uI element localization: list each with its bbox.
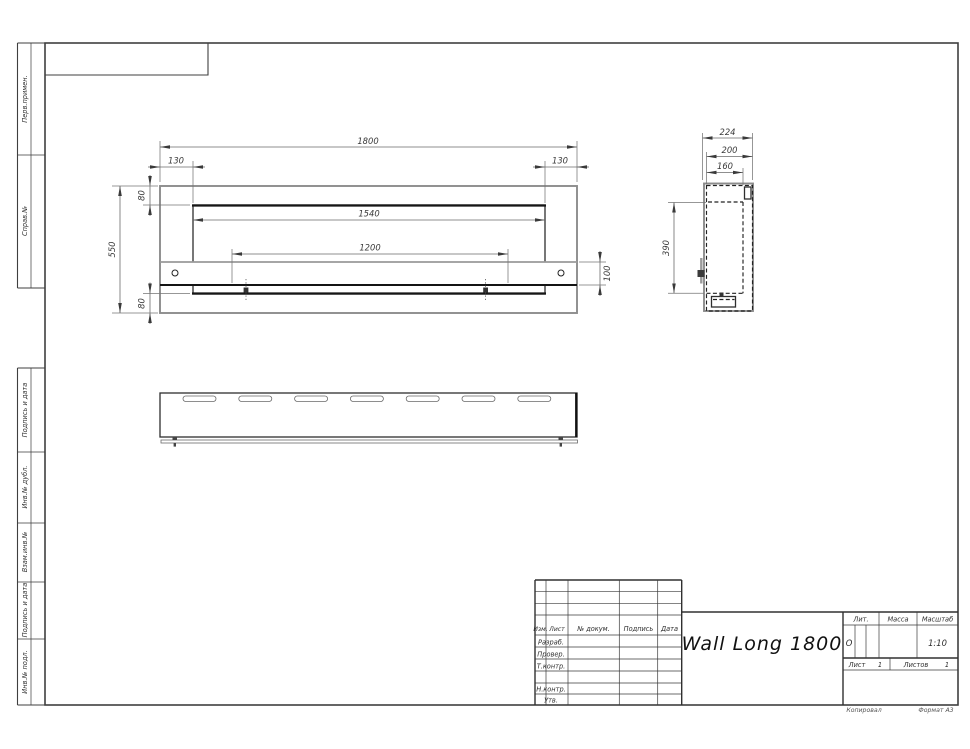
tb-sheet-label: Лист: [848, 661, 866, 669]
left-foot: [173, 437, 178, 447]
svg-text:80: 80: [137, 190, 147, 201]
tb-col-doc: № докум.: [576, 625, 610, 633]
margin-label-vzam-inv: Взам.инв.№: [21, 532, 29, 573]
dim-shelf-height: 100: [579, 251, 612, 296]
title-block: Изм. Лист № докум. Подпись Дата Разраб. …: [533, 580, 958, 705]
drawing-canvas: Перв.примен. Справ.№ Подпись и дата Инв.…: [0, 0, 970, 749]
tb-scale-value: 1:10: [928, 638, 947, 648]
bottom-view: [160, 393, 578, 447]
front-view-dimensions: 1800 130 130 80 80: [107, 136, 612, 324]
top-designation-box: [45, 43, 208, 75]
svg-text:1200: 1200: [359, 243, 380, 253]
tb-sheets-total: 1: [945, 661, 949, 669]
tb-lit-value: О: [846, 638, 853, 648]
svg-text:1800: 1800: [357, 136, 378, 146]
side-outer-contour: [704, 184, 753, 312]
tb-row-tcontrol: Т.контр.: [537, 663, 566, 671]
svg-text:224: 224: [720, 127, 736, 137]
dim-side-height: 390: [661, 203, 706, 294]
bottom-outer-contour: [160, 393, 577, 437]
margin-label-podpis-data-2: Подпись и дата: [21, 583, 29, 638]
tb-lit-label: Лит.: [852, 616, 868, 624]
copied-label: Копировал: [846, 707, 881, 714]
svg-text:1540: 1540: [358, 209, 379, 219]
margin-column-blocks: Перв.примен. Справ.№ Подпись и дата Инв.…: [18, 43, 46, 705]
svg-text:130: 130: [168, 156, 184, 166]
product-name: Wall Long 1800: [682, 633, 843, 655]
svg-text:160: 160: [717, 161, 733, 171]
tb-col-list: Лист: [548, 626, 565, 633]
tb-row-checked: Провер.: [537, 651, 564, 659]
side-top-bracket: [745, 187, 752, 199]
drawing-sheet: Перв.примен. Справ.№ Подпись и дата Инв.…: [0, 0, 970, 749]
tb-col-sign: Подпись: [624, 625, 654, 633]
left-mount-hole: [172, 270, 178, 276]
svg-text:550: 550: [107, 242, 117, 258]
tb-mass-label: Масса: [887, 616, 908, 624]
footer-notes: Копировал Формат А3: [846, 707, 953, 714]
svg-text:100: 100: [602, 266, 612, 282]
tb-scale-label: Масштаб: [922, 616, 953, 624]
dim-top-flange: 80: [137, 175, 191, 216]
svg-text:200: 200: [722, 145, 738, 155]
margin-label-podpis-data-1: Подпись и дата: [21, 383, 29, 438]
margin-label-inv-podl: Инв.№ подл.: [21, 650, 29, 693]
side-bottom-box: [712, 293, 736, 308]
dim-bottom-flange: 80: [137, 283, 191, 325]
format-label: Формат А3: [918, 707, 953, 714]
shelf-band: [161, 263, 576, 285]
vent-slots: [183, 396, 551, 402]
svg-text:390: 390: [661, 240, 671, 256]
dim-opening-width: 1540: [193, 209, 545, 221]
sheet-frame: [45, 43, 958, 705]
margin-label-perv-primen: Перв.примен.: [21, 75, 29, 122]
margin-label-sprav-no: Справ.№: [21, 206, 29, 236]
tb-sheet-number: 1: [878, 661, 882, 669]
side-hidden-contour: [707, 186, 753, 312]
tb-col-date: Дата: [660, 625, 678, 633]
right-mount-hole: [558, 270, 564, 276]
tb-row-ncontrol: Н.контр.: [536, 686, 566, 694]
margin-label-inv-dubl: Инв.№ дубл.: [21, 465, 29, 508]
tb-row-approved: Утв.: [544, 697, 558, 705]
svg-text:130: 130: [552, 156, 568, 166]
bottom-mount-rail: [161, 440, 578, 443]
dim-right-inset: 130: [533, 156, 589, 204]
tb-sheets-label: Листов: [903, 661, 929, 669]
svg-text:80: 80: [137, 298, 147, 309]
tb-col-izm: Изм.: [533, 626, 547, 633]
dim-left-inset: 130: [148, 156, 205, 204]
side-view-dimensions: 224 200 160 390: [661, 127, 753, 293]
dim-overall-width: 1800: [160, 136, 577, 182]
dim-depth-inner: 160: [707, 161, 744, 185]
tb-row-developed: Разраб.: [538, 639, 564, 647]
right-foot: [559, 437, 564, 447]
